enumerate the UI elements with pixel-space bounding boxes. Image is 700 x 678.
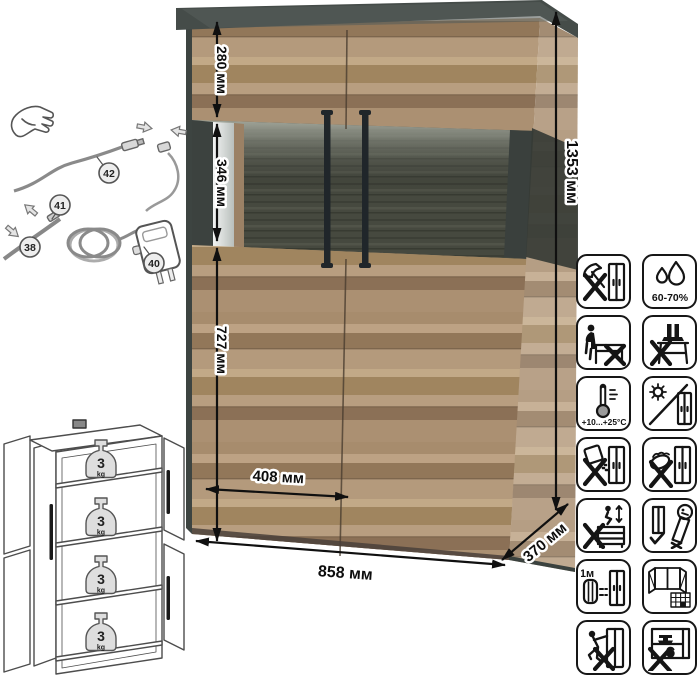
svg-text:41: 41 [54,200,66,212]
led-wiring-diagram: 42 41 38 40 [2,95,198,291]
sketch-left-doors [4,436,56,672]
no-heavy-objects-inside-icon [642,620,697,675]
ventilate-room-icon [642,559,697,614]
no-dragging-tilting-icon [576,620,631,675]
svg-text:≥1м: ≥1м [581,568,594,580]
svg-text:60-70%: 60-70% [651,292,688,304]
no-jumping-climbing-icon [576,498,631,553]
product-infographic: 280 мм 346 мм 727 мм 408 мм 858 мм 370 м… [0,0,700,678]
svg-text:38: 38 [24,242,36,254]
care-icons-grid: 60-70% [576,254,697,675]
humidity-60-70-icon: 60-70% [642,254,697,309]
hand-icon [12,106,54,136]
sketch-right-doors [164,438,184,650]
glass-reflection [213,122,234,250]
svg-text:42: 42 [103,168,115,180]
svg-text:+10...+25°C: +10...+25°C [581,417,626,427]
svg-text:40: 40 [148,258,160,270]
no-wet-cleaning-icon [642,437,697,492]
shelf-load-sketch: 3 kg [0,418,190,678]
cabinet-lower-doors [192,245,527,560]
no-direct-sunlight-icon [642,376,697,431]
keep-1m-from-heaters-icon: ≥1м [576,559,631,614]
no-abrasive-cleaners-icon [576,437,631,492]
transport-upright-only-icon [642,498,697,553]
no-standing-on-top-icon [642,315,697,370]
temperature-range-icon: +10...+25°C [576,376,631,431]
no-chopping-impact-icon [576,254,631,309]
cabinet-photo [170,0,580,580]
no-sitting-icon [576,315,631,370]
